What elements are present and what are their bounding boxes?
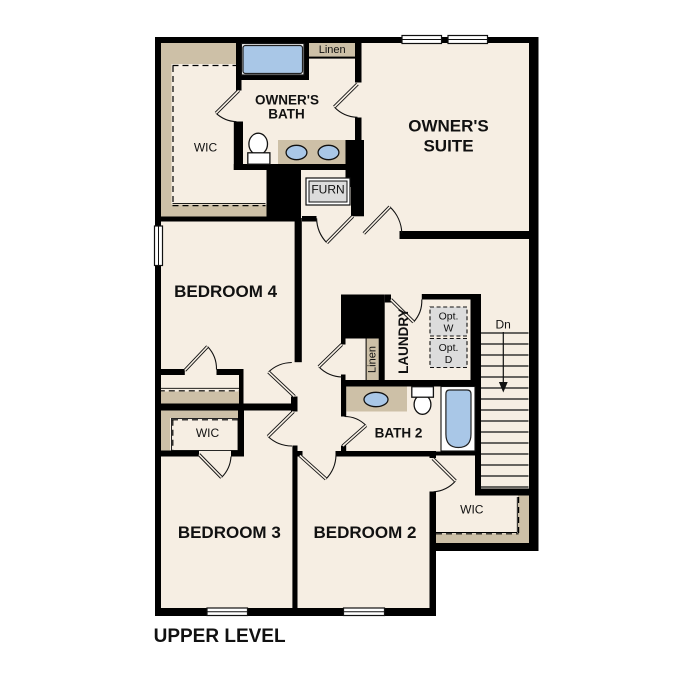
svg-text:OWNER'S: OWNER'S (408, 117, 489, 136)
svg-text:BEDROOM 2: BEDROOM 2 (314, 523, 417, 542)
svg-text:FURN: FURN (311, 183, 344, 197)
svg-text:WIC: WIC (196, 426, 220, 440)
svg-text:OWNER'S: OWNER'S (255, 92, 319, 107)
svg-text:UPPER LEVEL: UPPER LEVEL (154, 626, 286, 647)
svg-text:LAUNDRY: LAUNDRY (396, 308, 411, 374)
svg-text:Linen: Linen (319, 44, 346, 56)
svg-text:Linen: Linen (367, 346, 379, 373)
svg-text:W: W (444, 322, 454, 334)
svg-text:BEDROOM 3: BEDROOM 3 (178, 523, 281, 542)
svg-text:WIC: WIC (460, 502, 484, 516)
svg-text:Opt.: Opt. (439, 310, 459, 322)
svg-text:SUITE: SUITE (423, 137, 473, 156)
svg-text:BEDROOM 4: BEDROOM 4 (174, 282, 278, 301)
svg-text:D: D (445, 354, 453, 366)
svg-text:Opt.: Opt. (439, 342, 459, 354)
svg-text:Dn: Dn (496, 318, 511, 332)
svg-text:BATH 2: BATH 2 (375, 425, 423, 440)
svg-text:BATH: BATH (268, 106, 305, 121)
svg-text:WIC: WIC (194, 141, 218, 155)
